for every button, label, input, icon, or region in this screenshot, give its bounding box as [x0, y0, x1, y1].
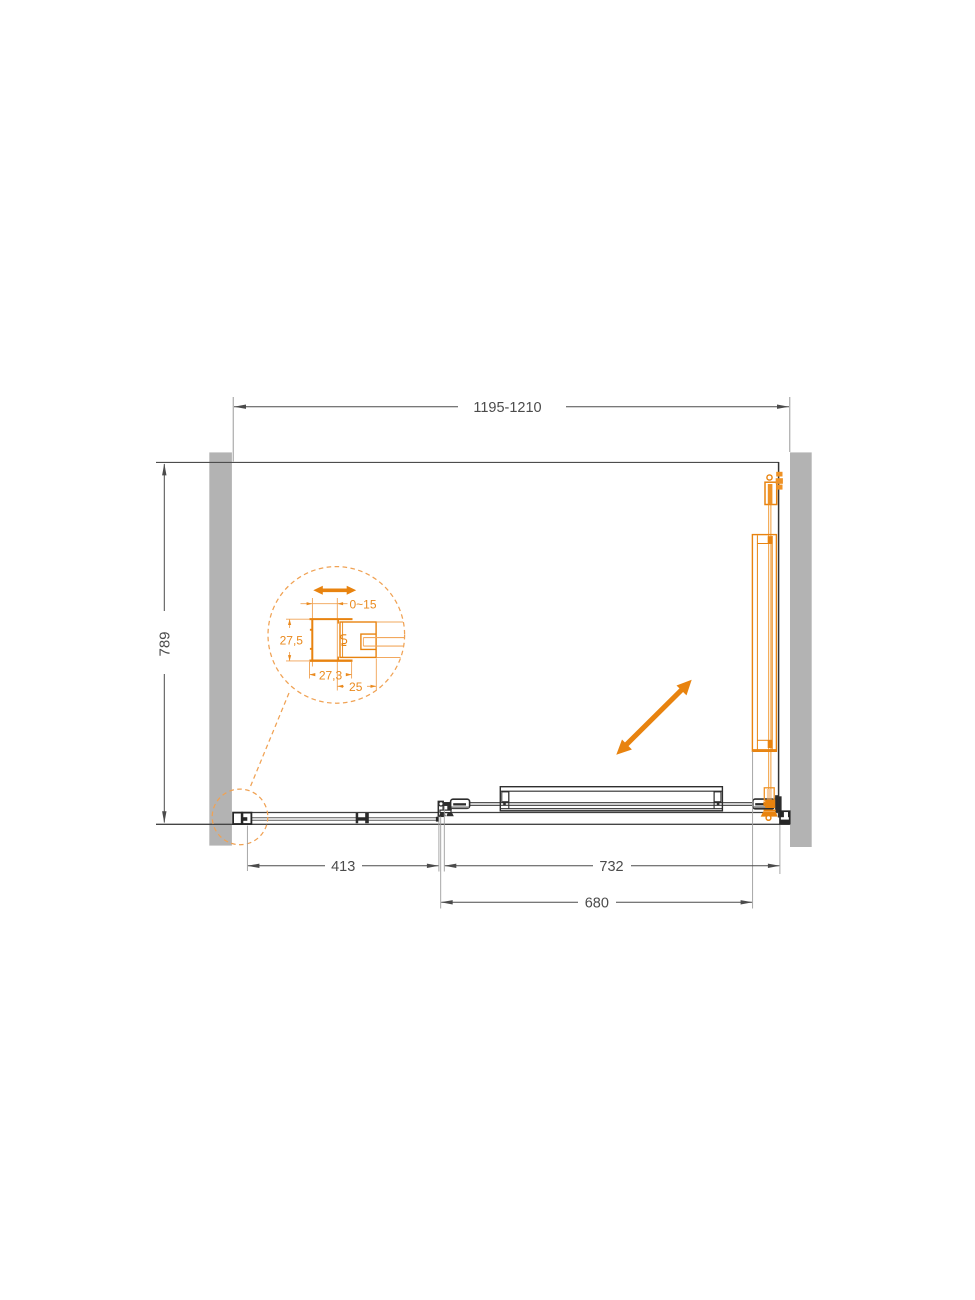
svg-text:27,5: 27,5	[280, 633, 304, 647]
svg-text:25: 25	[349, 680, 363, 694]
svg-text:413: 413	[331, 859, 355, 875]
svg-text:732: 732	[599, 859, 623, 875]
svg-text:27,3: 27,3	[319, 668, 343, 682]
svg-text:789: 789	[157, 631, 174, 656]
svg-text:0~15: 0~15	[349, 597, 376, 611]
svg-text:680: 680	[585, 896, 609, 912]
svg-text:1195-1210: 1195-1210	[473, 400, 541, 416]
